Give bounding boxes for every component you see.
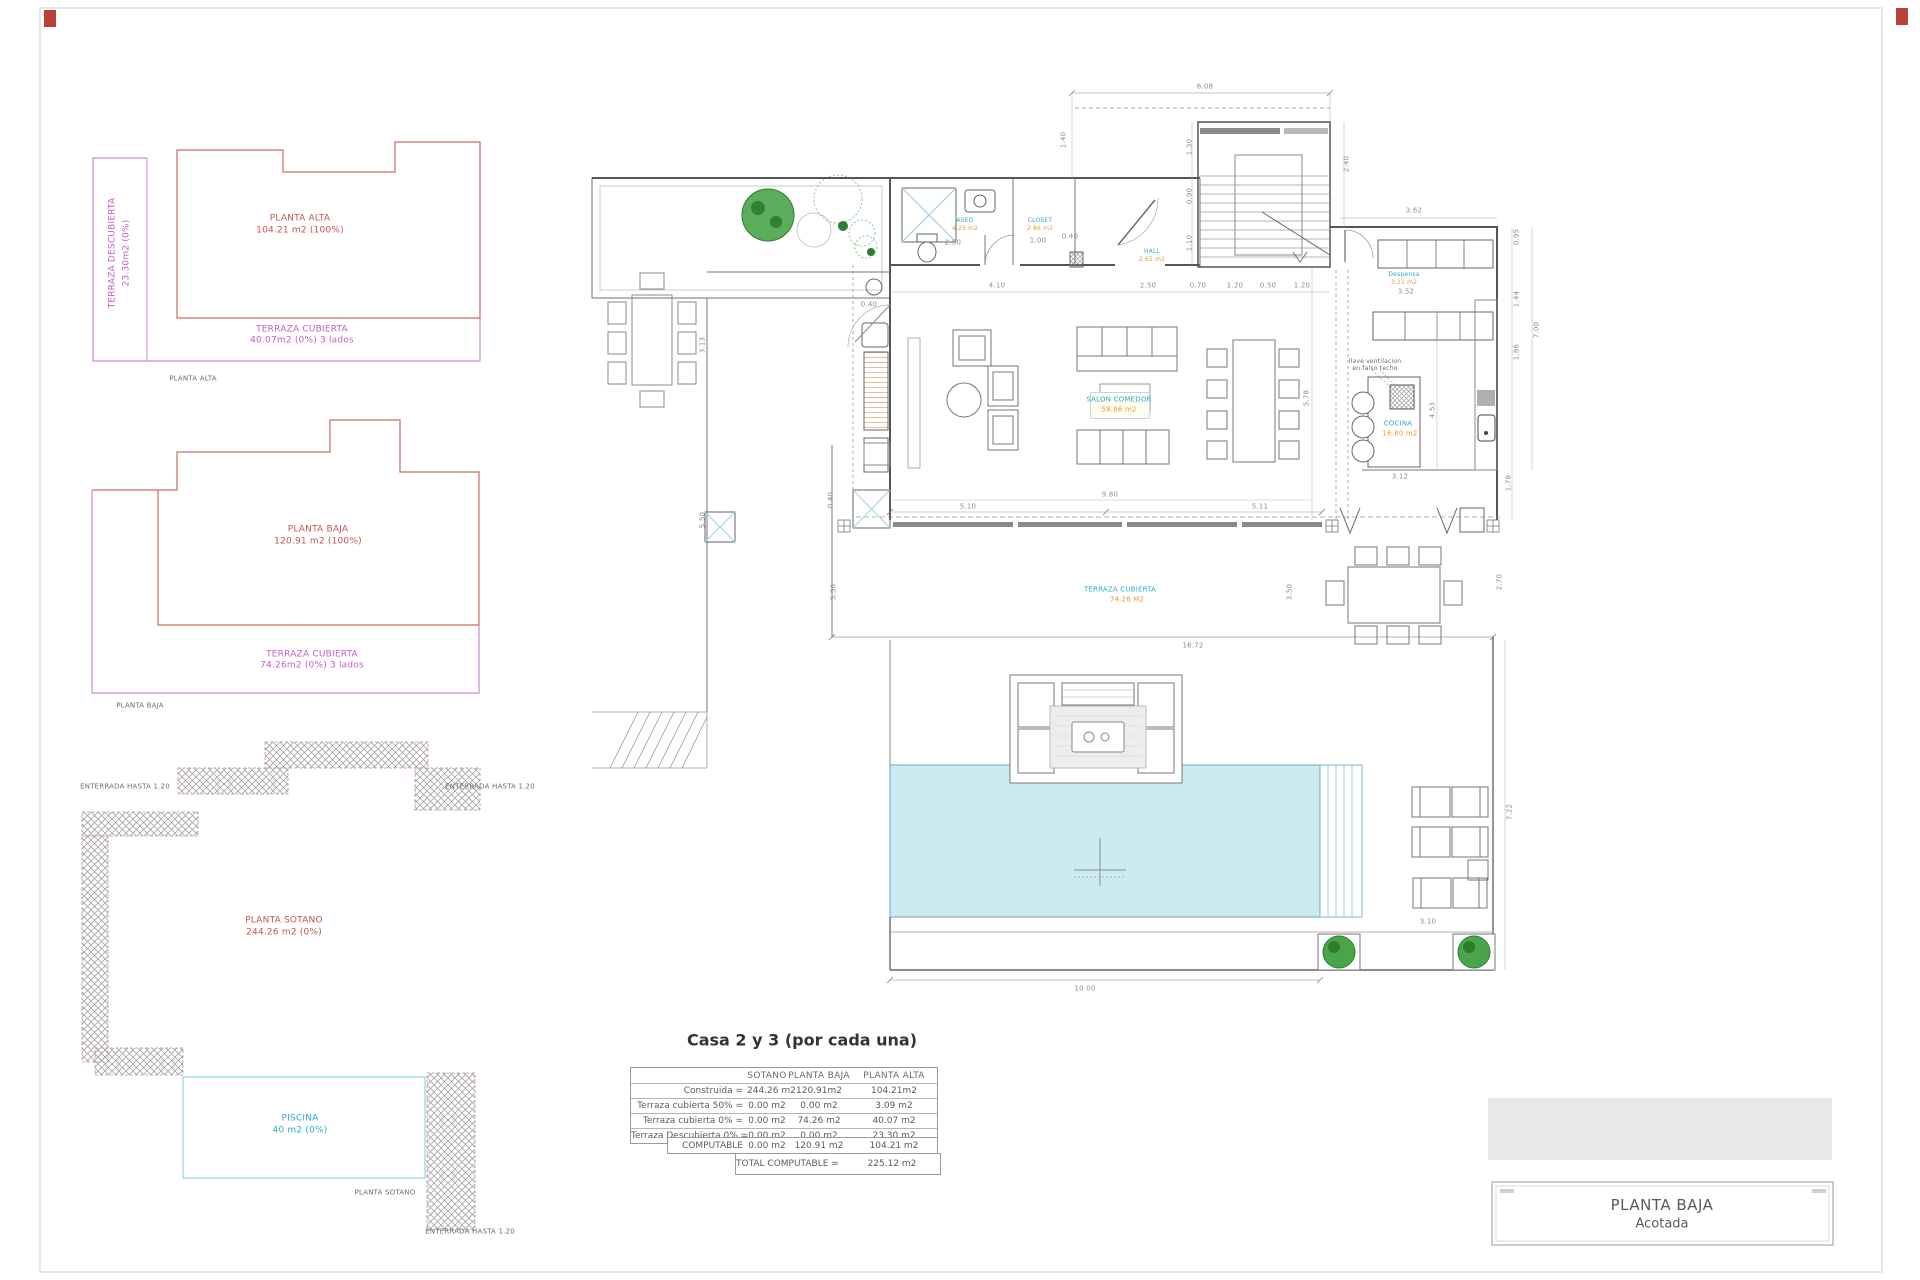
summary-row: Terraza cubierta 0% =0.00 m274.26 m240.0… bbox=[631, 1113, 937, 1128]
summary-value: 0.00 m2 bbox=[747, 1141, 787, 1151]
summary-value: 244.26 m2 bbox=[747, 1086, 787, 1096]
sheet-frame bbox=[40, 8, 1908, 1272]
summary-value: 0.00 m2 bbox=[747, 1116, 787, 1126]
summary-row-computable: COMPUTABLE0.00 m2120.91 m2104.21 m2 bbox=[668, 1138, 937, 1153]
hob-icon bbox=[1390, 385, 1414, 409]
corner-mark-right bbox=[1896, 8, 1908, 25]
summary-header-row: SOTANOPLANTA BAJAPLANTA ALTA bbox=[631, 1068, 937, 1083]
salon-label-highlight bbox=[1090, 392, 1150, 419]
summary-table: SOTANOPLANTA BAJAPLANTA ALTAConstruida =… bbox=[630, 1067, 942, 1177]
kitchen bbox=[1336, 230, 1497, 520]
washbasin-icon bbox=[965, 190, 995, 212]
summary-value: 0.00 m2 bbox=[787, 1101, 851, 1111]
entry-door bbox=[1118, 198, 1158, 245]
summary-row: Construida =244.26 m2120.91m2104.21m2 bbox=[631, 1083, 937, 1098]
summary-row-label: COMPUTABLE bbox=[668, 1141, 747, 1151]
keyplan-planta-alta bbox=[93, 142, 480, 361]
tree-icon bbox=[742, 175, 877, 258]
summary-value: 40.07 m2 bbox=[851, 1116, 937, 1126]
summary-value: 120.91m2 bbox=[787, 1086, 851, 1096]
summary-total-label: TOTAL COMPUTABLE = bbox=[736, 1159, 842, 1169]
planter-box bbox=[592, 178, 890, 298]
pool-area bbox=[890, 637, 1493, 970]
summary-total-value: 225.12 m2 bbox=[842, 1159, 942, 1169]
summary-value: 74.26 m2 bbox=[787, 1116, 851, 1126]
summary-value: 3.09 m2 bbox=[851, 1101, 937, 1111]
titleblock-plan-name: PLANTA BAJA bbox=[1611, 1196, 1714, 1214]
summary-col-header: PLANTA ALTA bbox=[851, 1071, 937, 1081]
ramp bbox=[592, 712, 707, 768]
summary-row-label: Terraza cubierta 50% = bbox=[631, 1101, 747, 1111]
summary-row-label: Construida = bbox=[631, 1086, 747, 1096]
dining-table bbox=[1233, 340, 1275, 462]
door-arc bbox=[985, 235, 1015, 265]
keyplan-piscina-outline bbox=[183, 1077, 425, 1178]
summary-value: 104.21m2 bbox=[851, 1086, 937, 1096]
keyplan-planta-sotano bbox=[82, 742, 480, 1230]
sink-icon bbox=[1478, 415, 1495, 441]
summary-value: 0.00 m2 bbox=[747, 1101, 787, 1111]
deck-trees bbox=[1318, 934, 1495, 970]
garden-table bbox=[608, 273, 696, 407]
terrace bbox=[705, 443, 1500, 640]
floor-plan-drawing bbox=[0, 0, 1920, 1280]
summary-value: 120.91 m2 bbox=[787, 1141, 851, 1151]
titleblock-plan-subtitle: Acotada bbox=[1635, 1217, 1688, 1232]
toilet-icon bbox=[917, 234, 937, 262]
summary-value: 104.21 m2 bbox=[851, 1141, 937, 1151]
summary-title: Casa 2 y 3 (por cada una) bbox=[687, 1031, 917, 1050]
summary-row-label: Terraza cubierta 0% = bbox=[631, 1116, 747, 1126]
duct-icon bbox=[1070, 252, 1083, 267]
summary-col-header: PLANTA BAJA bbox=[787, 1071, 851, 1081]
lounge-set bbox=[1010, 675, 1182, 783]
sun-loungers bbox=[1412, 787, 1488, 908]
corner-mark-left bbox=[44, 10, 56, 27]
architectural-sheet: PLANTA ALTA104.21 m2 (100%)TERRAZA DESCU… bbox=[0, 0, 1920, 1280]
terrace-dining-set bbox=[1326, 547, 1462, 644]
summary-col-header: SOTANO bbox=[747, 1071, 787, 1081]
pool-steps bbox=[1320, 765, 1362, 917]
salon-wall-fixtures bbox=[848, 265, 890, 520]
keyplan-planta-baja bbox=[92, 420, 479, 693]
staircase bbox=[1198, 122, 1330, 267]
walls bbox=[592, 178, 1497, 520]
summary-row: Terraza cubierta 50% =0.00 m20.00 m23.09… bbox=[631, 1098, 937, 1113]
swimming-pool bbox=[890, 765, 1320, 917]
